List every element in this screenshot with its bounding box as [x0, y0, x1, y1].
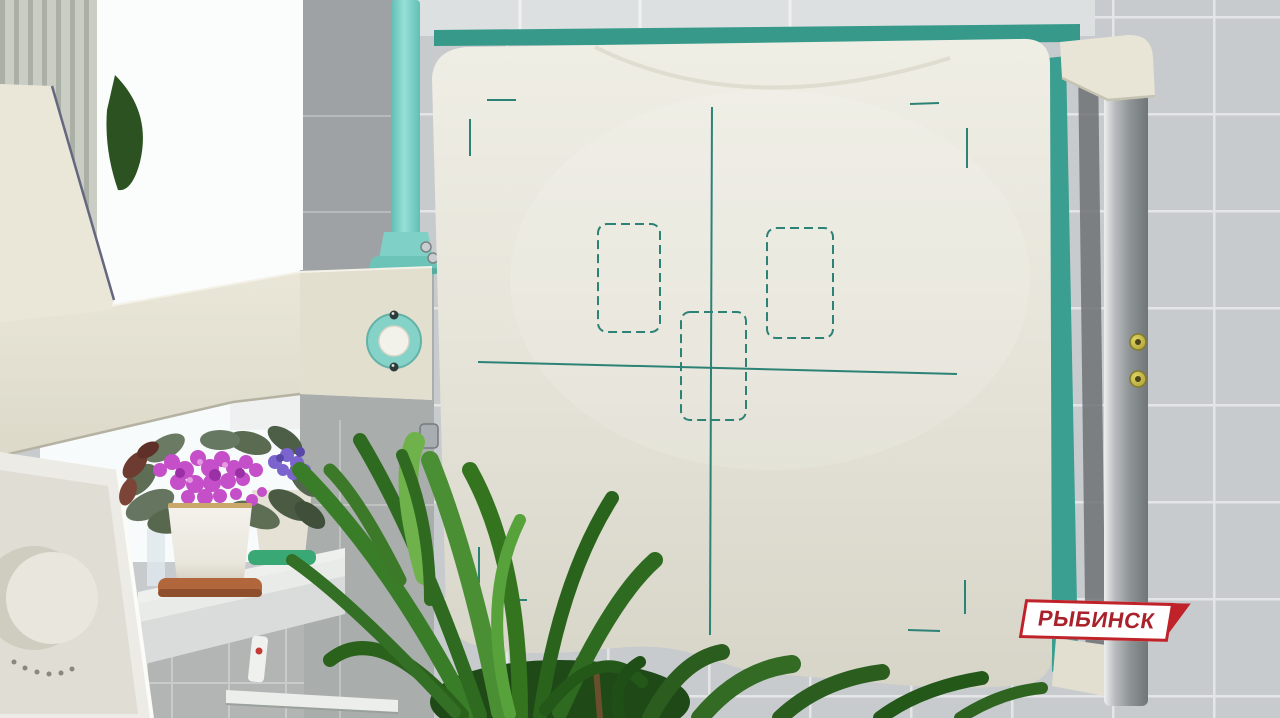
channel-watermark: РЫБИНСК [1019, 599, 1174, 642]
dark-tile-column [303, 0, 393, 273]
flange-bolt [421, 242, 431, 252]
xray-room-photo: РЫБИНСК [0, 0, 1280, 718]
channel-watermark-text: РЫБИНСК [1036, 607, 1157, 634]
xray-detector-panel [432, 24, 1080, 688]
rotary-dial [6, 552, 98, 644]
glass-jar [147, 528, 165, 586]
flower-pot-front [168, 505, 252, 588]
flange-bolt [428, 253, 438, 263]
